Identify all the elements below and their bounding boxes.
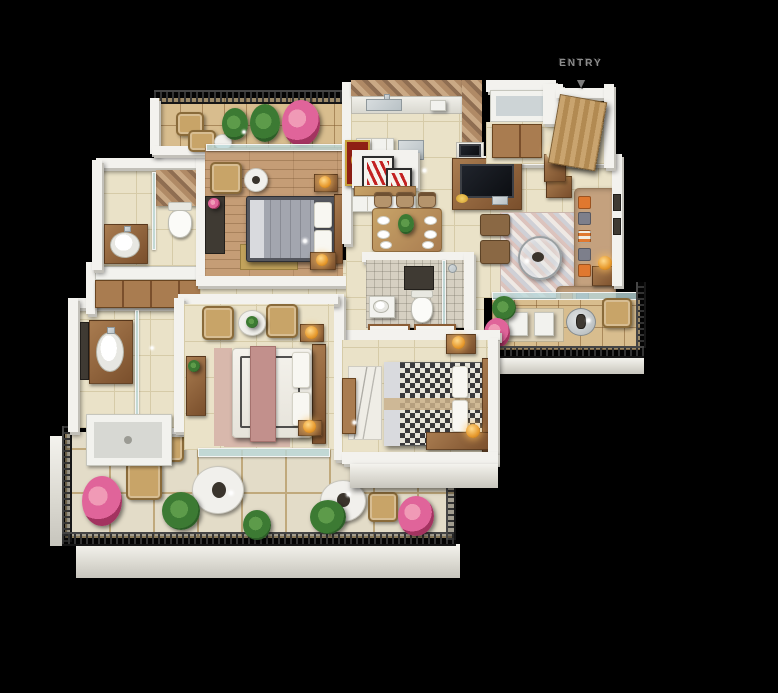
dining-chair-1: [374, 192, 392, 208]
master-rug-side: [214, 348, 232, 446]
sparkle-7: [240, 128, 248, 136]
bedroom1-lamp-1: [319, 176, 331, 188]
terrace-plant-pink-2: [398, 496, 434, 536]
bathroom1-shower-glass: [152, 172, 156, 250]
foyer-cabinet: [492, 124, 542, 158]
living-ottoman-2: [480, 240, 510, 264]
sparkle-2: [420, 166, 429, 175]
living-balcony-mat-2: [534, 312, 554, 336]
master-armchair-1: [202, 306, 234, 340]
master-lamp-1: [305, 326, 318, 339]
living-balcony-plant-green: [492, 296, 516, 320]
bedroom2-bench: [426, 432, 492, 450]
kitchen-faucet: [384, 94, 390, 100]
dining-chair-3: [418, 192, 436, 208]
wardrobe-cabinet-white: [95, 266, 203, 280]
living-balcony-railing-right: [636, 282, 646, 348]
entry-arrow-icon: ▼: [572, 76, 590, 92]
bedroom2-lamp-2: [466, 424, 480, 438]
floor-plan-render: ENTRY ▼: [0, 0, 778, 693]
terrace-table-1-vase: [212, 482, 226, 498]
sparkle-1: [300, 236, 310, 246]
master-wall-top: [178, 294, 338, 304]
dining-plate-5: [380, 241, 392, 249]
dining-plate-1: [377, 216, 390, 225]
bedroom1-wall-bottom: [196, 276, 346, 286]
sparkle-8: [226, 488, 236, 498]
kitchen-backsplash: [351, 80, 465, 96]
living-cushion-4: [578, 248, 591, 261]
bathroom2-toilet: [411, 297, 433, 323]
bedroom1-balcony-glass-door: [206, 144, 344, 151]
master-table-plant: [246, 316, 258, 328]
kitchen-sink: [366, 99, 402, 111]
living-wall-frame-2: [613, 218, 621, 235]
bathroom1-wall-left: [92, 160, 102, 270]
master-terrace-glass-door: [198, 448, 330, 457]
master-armchair-2: [266, 304, 298, 338]
living-tv-screen: [460, 164, 514, 198]
bedroom1-pillow-1: [314, 202, 332, 228]
master-bath-drain: [124, 436, 132, 444]
master-bed-runner: [250, 346, 276, 442]
master-bath-faucet: [107, 327, 115, 334]
living-coffee-table-decor: [532, 252, 544, 262]
entry-label: ENTRY: [550, 58, 612, 72]
dining-plate-4: [424, 230, 437, 239]
bathroom2-shower-head: [448, 264, 457, 273]
bedroom2-wall-right: [488, 338, 498, 456]
terrace-plant-green-2: [310, 500, 346, 534]
sparkle-9: [344, 490, 353, 499]
kitchen-hob: [459, 144, 481, 157]
bathroom1-faucet: [124, 226, 131, 232]
master-bath-sink: [96, 332, 124, 372]
terrace-railing-left: [62, 426, 72, 542]
bedroom2-pillow-1: [452, 366, 468, 398]
dining-chair-2: [396, 192, 414, 208]
bathroom2-glass-partition: [442, 260, 446, 328]
sparkle-4: [350, 418, 359, 427]
living-cushion-1: [578, 196, 591, 209]
entry-utility-floor: [496, 96, 546, 116]
bedroom1-armchair: [210, 162, 242, 194]
bathroom2-vanity-unit: [404, 266, 434, 290]
dining-plate-2: [377, 230, 390, 239]
bedroom2-lamp-1: [452, 336, 465, 349]
bathroom1-toilet: [168, 210, 192, 238]
kitchen-crockery: [430, 100, 446, 111]
bathroom2-wall-right: [464, 252, 474, 336]
bedroom1-side-table-decor: [252, 176, 260, 184]
bedroom1-lamp-2: [316, 254, 328, 266]
living-cushion-2: [578, 212, 591, 225]
terrace-plant-green-1: [162, 492, 200, 530]
bathroom1-sink: [110, 232, 140, 258]
master-dresser-plant: [188, 360, 200, 372]
living-balcony-railing-front: [492, 346, 644, 358]
living-balcony-fascia: [498, 358, 644, 374]
bedroom1-wall-left: [196, 148, 205, 282]
living-cushion-3: [578, 230, 591, 243]
living-lamp-2: [598, 256, 612, 270]
master-wall-left: [174, 298, 184, 432]
master-bath-wall-left: [68, 298, 78, 432]
bedroom1-sheet-fold: [250, 200, 264, 258]
entry-wall-right: [604, 84, 614, 168]
living-tv-radio: [492, 196, 508, 205]
terrace-plant-green-3: [243, 510, 271, 540]
dining-centerpiece: [398, 214, 414, 234]
living-ottoman-1: [480, 214, 510, 236]
bedroom2-bed-band: [384, 398, 484, 410]
balcony1-plant-green-2: [250, 104, 280, 142]
balcony1-plant-pink: [282, 100, 320, 146]
bedroom2-wall-bottom: [342, 452, 498, 464]
master-bath-glass-partition: [135, 310, 139, 422]
living-balcony-chair: [602, 298, 632, 328]
living-wall-frame-1: [613, 194, 621, 211]
terrace-railing-right: [446, 484, 456, 540]
dining-plate-6: [422, 241, 434, 249]
terrace-chair-1: [126, 462, 162, 500]
dining-plate-3: [424, 216, 437, 225]
master-lamp-2: [303, 420, 316, 433]
kitchen-wall-right: [462, 80, 482, 144]
balcony1-railing: [154, 90, 346, 104]
living-cushion-5: [578, 264, 591, 277]
terrace-chair-3: [368, 492, 398, 522]
sparkle-5: [148, 344, 156, 352]
terrace-fascia: [76, 544, 460, 578]
sparkle-6: [584, 316, 593, 325]
master-pillow-1: [292, 352, 310, 388]
bathroom2-sink: [373, 300, 389, 313]
living-tv-flowers: [456, 194, 468, 203]
bathroom1-shower-wall: [156, 170, 200, 206]
bathroom1-wall-top: [96, 158, 206, 168]
bedroom2-fascia: [350, 464, 498, 488]
sparkle-3: [522, 256, 532, 266]
terrace-plant-pink-1: [82, 476, 122, 526]
master-bath-mirror: [80, 322, 89, 380]
bedroom1-shelf-flowers: [208, 198, 220, 209]
